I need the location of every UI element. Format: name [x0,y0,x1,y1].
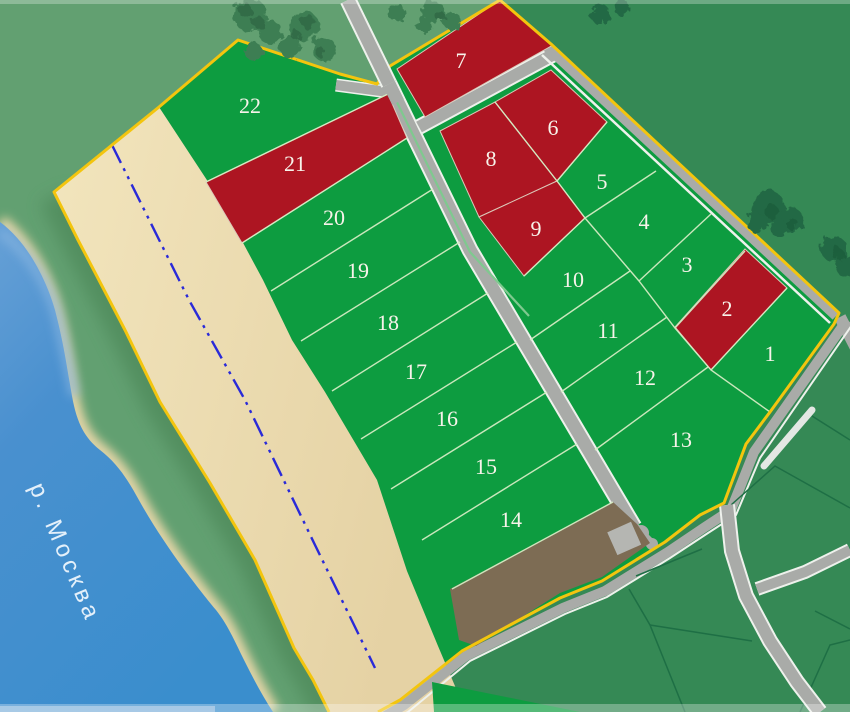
svg-text:13: 13 [670,427,692,452]
svg-text:6: 6 [548,115,559,140]
svg-text:10: 10 [562,267,584,292]
svg-text:11: 11 [597,318,618,343]
svg-text:9: 9 [531,216,542,241]
svg-text:2: 2 [722,296,733,321]
svg-text:8: 8 [486,146,497,171]
svg-text:19: 19 [347,258,369,283]
svg-text:21: 21 [284,151,306,176]
svg-text:12: 12 [634,365,656,390]
svg-text:20: 20 [323,205,345,230]
svg-text:1: 1 [765,341,776,366]
svg-text:7: 7 [456,48,467,73]
svg-text:3: 3 [682,252,693,277]
svg-text:14: 14 [500,507,522,532]
svg-text:16: 16 [436,406,458,431]
svg-text:22: 22 [239,93,261,118]
svg-text:17: 17 [405,359,427,384]
svg-text:15: 15 [475,454,497,479]
svg-text:4: 4 [639,209,650,234]
svg-text:18: 18 [377,310,399,335]
svg-text:5: 5 [597,169,608,194]
